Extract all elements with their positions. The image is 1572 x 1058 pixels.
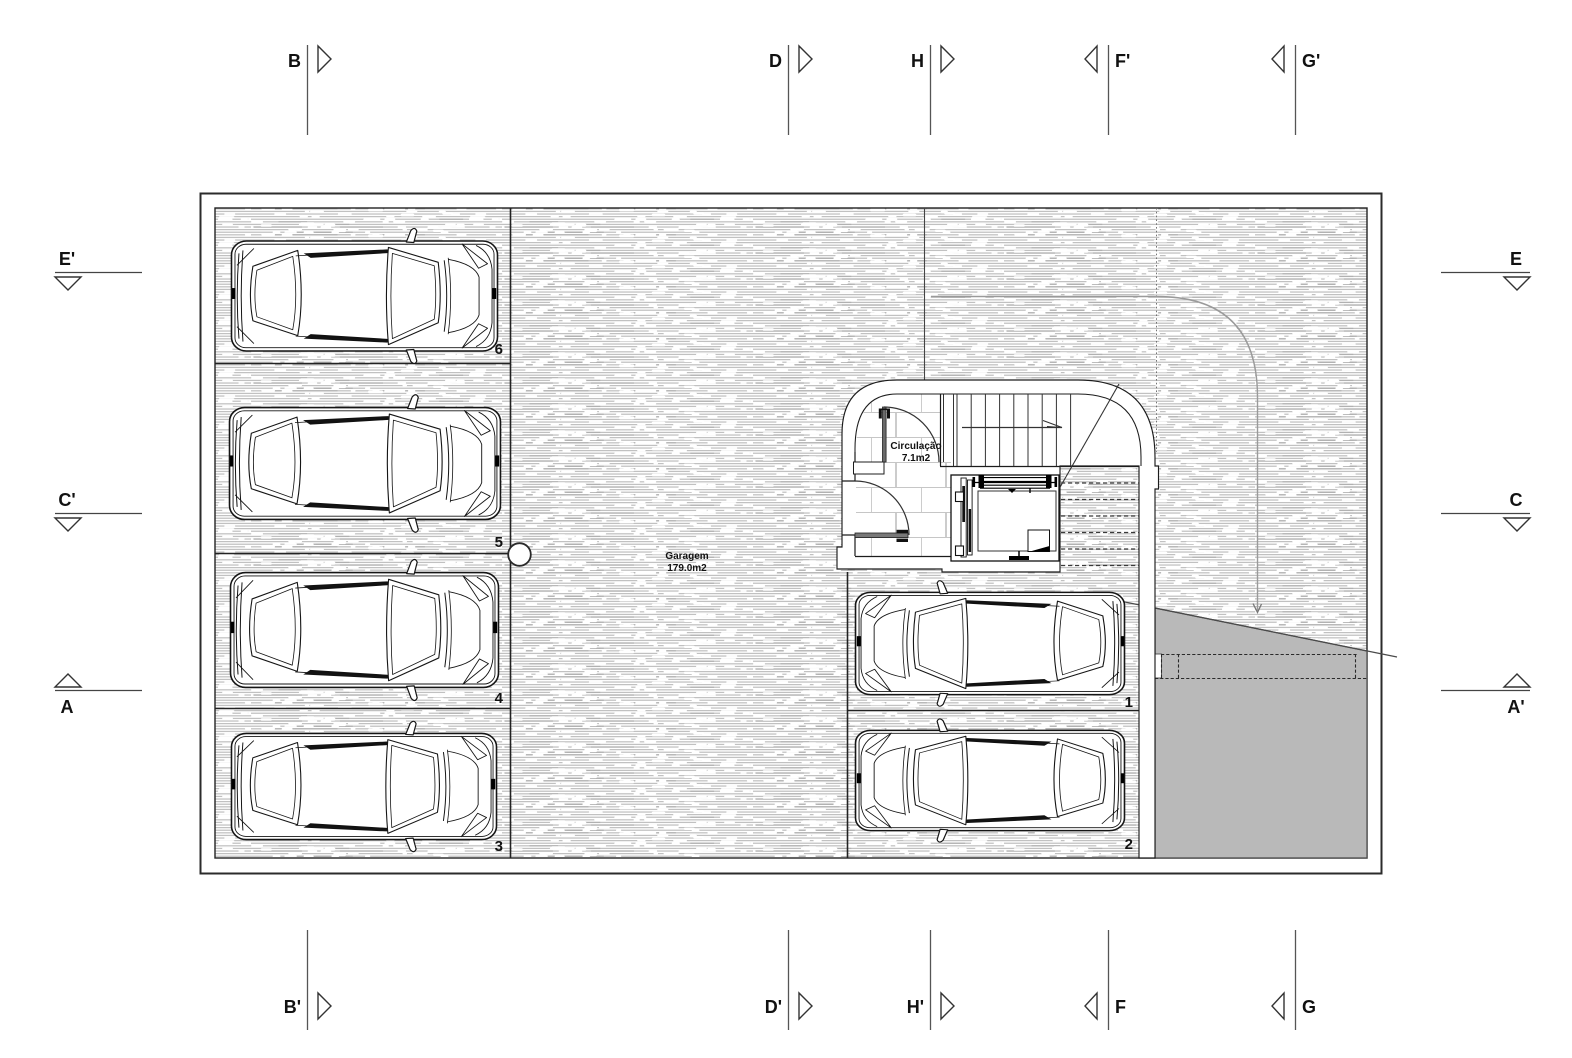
svg-text:G: G <box>1302 997 1316 1017</box>
svg-text:Garagem: Garagem <box>665 551 708 562</box>
svg-text:2: 2 <box>1125 836 1133 853</box>
svg-text:D: D <box>769 51 782 71</box>
svg-text:4: 4 <box>495 690 504 707</box>
svg-text:Circulação: Circulação <box>890 441 941 452</box>
svg-text:F: F <box>1115 997 1126 1017</box>
svg-text:179.0m2: 179.0m2 <box>667 563 707 574</box>
svg-text:B: B <box>288 51 301 71</box>
svg-text:E: E <box>1510 249 1522 269</box>
svg-text:C: C <box>1510 490 1523 510</box>
svg-text:B': B' <box>284 997 301 1017</box>
svg-text:1: 1 <box>1125 694 1133 711</box>
svg-text:G': G' <box>1302 51 1320 71</box>
svg-text:C': C' <box>58 490 75 510</box>
svg-text:E': E' <box>59 249 75 269</box>
svg-text:3: 3 <box>495 838 503 855</box>
svg-text:H': H' <box>907 997 924 1017</box>
svg-text:A: A <box>61 697 74 717</box>
svg-text:D': D' <box>765 997 782 1017</box>
svg-text:6: 6 <box>495 341 503 358</box>
svg-text:A': A' <box>1507 697 1524 717</box>
svg-text:H: H <box>911 51 924 71</box>
svg-text:7.1m2: 7.1m2 <box>902 453 931 464</box>
svg-text:F': F' <box>1115 51 1130 71</box>
svg-text:5: 5 <box>495 534 503 551</box>
